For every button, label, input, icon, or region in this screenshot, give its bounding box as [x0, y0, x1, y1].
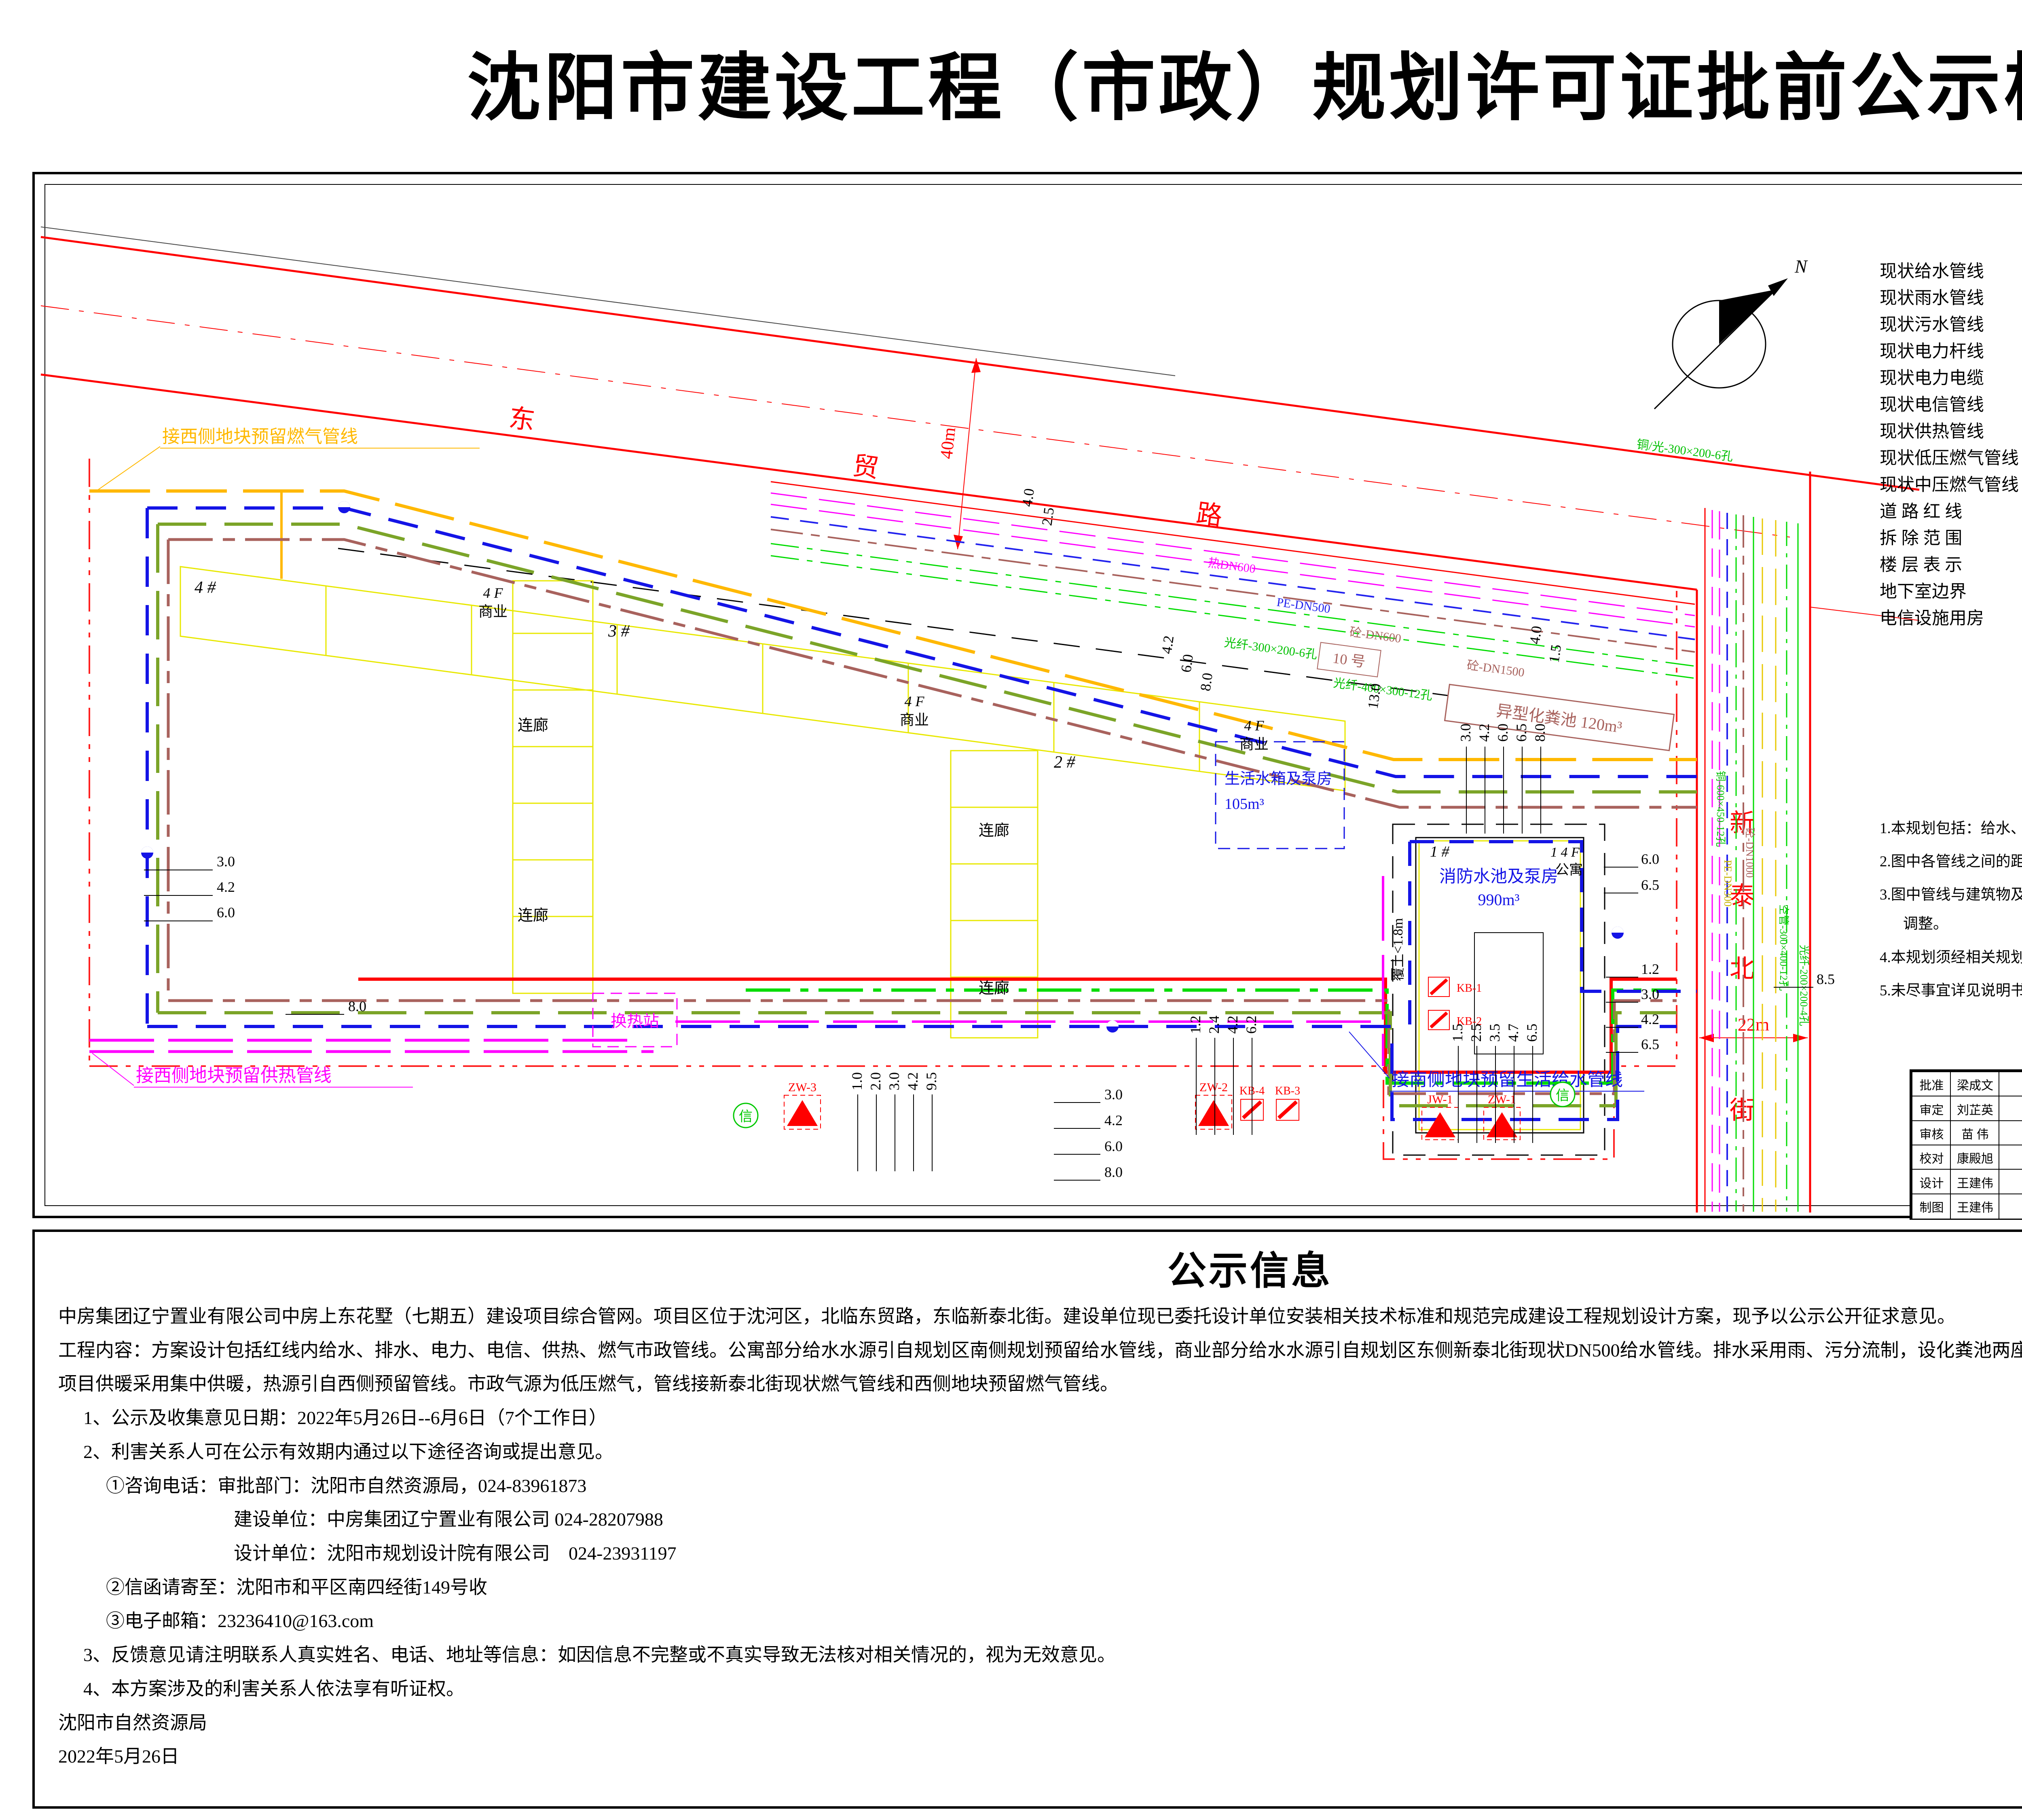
pipe-label: 光纤-300×200-6孔: [1223, 636, 1318, 661]
note-item: 2.图中各管线之间的距离为中心距，单位为米。: [1880, 847, 2022, 876]
role-label: 批准: [1912, 1071, 1952, 1097]
dim-label: 8.0: [348, 998, 366, 1014]
pipe-label: PE-DN300: [1722, 860, 1734, 907]
dim-label: 3.0: [1104, 1086, 1123, 1103]
pipe-label: 砼-DN1000: [1744, 827, 1756, 878]
equip-label: JW-1: [1427, 1093, 1453, 1106]
dim-label: 3.0: [1641, 986, 1659, 1002]
dim-label: 6.0: [1104, 1138, 1123, 1154]
svg-text:信: 信: [1556, 1088, 1569, 1103]
water-south-label: 接南侧地块预留生活给水管线: [1392, 1070, 1623, 1090]
corridor-label: 连廊: [518, 717, 548, 734]
legend-title: 图 例: [1880, 182, 2022, 238]
note-item: 5.未尽事宜详见说明书，或按有关规范执行。: [1880, 976, 2022, 1005]
legend-row: 现状中压燃气管线 SS 钢 砼 化 粪 池 8 号: [1880, 470, 2022, 497]
dim-label: 9.5: [923, 1072, 939, 1090]
water-tank-room: [1216, 742, 1344, 849]
dim-label: 8.0: [1104, 1164, 1123, 1180]
legend-row: 现状污水管线 规划雨水管线: [1880, 310, 2022, 336]
building-label: 4 #: [195, 578, 216, 597]
cover-depth-label: 覆土<1.8m: [1391, 918, 1406, 981]
dim-label: 1.2: [1187, 1016, 1203, 1034]
legend-row: 拆 除 范 围 地 下 开 闭 站: [1880, 523, 2022, 550]
corridor-label: 连廊: [979, 980, 1009, 997]
drawing-panel: 40m 22m 东 贸 路 新 泰 北 街 N: [32, 172, 2022, 1218]
fire-pool-label: 消防水池及泵房: [1439, 868, 1558, 886]
dim-label: 1.0: [849, 1072, 865, 1090]
dim-label: 3.0: [217, 853, 235, 870]
building-label: 4 F: [483, 585, 503, 601]
legend: 图 例 现状给水管线 规划给水管线 现状雨水管线 规划污水管线 现状污水管: [1880, 182, 2022, 630]
notice-line: 沈阳市自然资源局: [35, 1706, 2022, 1740]
gas-west-callout: 接西侧地块预留燃气管线: [96, 427, 480, 491]
fire-pool-volume: 990m³: [1478, 891, 1519, 909]
role-label: 设计: [1912, 1169, 1952, 1195]
equip-label: ZW-3: [788, 1081, 816, 1094]
legend-row: 现状供热管线 T 规划低压燃气管线 S: [1880, 417, 2022, 443]
heat-station-label: 换热站: [611, 1012, 659, 1030]
notice-title: 公示信息: [35, 1239, 2022, 1295]
pipe-label: 热DN600: [1207, 556, 1256, 576]
dim-label: 6.0: [1641, 851, 1659, 867]
water-tank-label: 生活水箱及泵房: [1225, 770, 1332, 787]
building-label: 1 #: [1430, 843, 1450, 860]
dim-label: 3.0: [886, 1072, 902, 1090]
legend-row: 电信设施用房 信: [1880, 603, 2022, 630]
equip-label: ZW-2: [1199, 1081, 1228, 1094]
dim-label: 8.0: [1532, 724, 1548, 742]
page-title: 沈阳市建设工程（市政）规划许可证批前公示板: [0, 28, 2022, 135]
basement-boundary: [338, 548, 1681, 1155]
dim-label: 8.0: [1197, 672, 1216, 692]
septic-no10-box: 10 号: [1317, 642, 1381, 677]
note-item: 1.本规划包括：给水、排水、电力、电信、供热、燃气等六项专业。: [1880, 814, 2022, 843]
dim-label: 6.2: [1243, 1016, 1259, 1034]
notes: 说 明 1.本规划包括：给水、排水、电力、电信、供热、燃气等六项专业。 2.图中…: [1880, 739, 2022, 1009]
dim-label: 6.0: [1178, 653, 1196, 673]
building-label: 3 #: [608, 622, 630, 641]
dim-label: 1.2: [1641, 961, 1659, 977]
north-compass: N: [1654, 256, 1808, 409]
gas-west-label: 接西侧地块预留燃气管线: [162, 427, 358, 447]
dim-label: 2.5: [1468, 1024, 1484, 1042]
street-name-char: 街: [1730, 1097, 1755, 1124]
notice-line: ②信函请寄至：沈阳市和平区南四经街149号收: [35, 1570, 2022, 1604]
dim-label: 6.0: [217, 904, 235, 921]
legend-row: 现状雨水管线 规划污水管线: [1880, 283, 2022, 310]
role-name: 梁成文: [1950, 1071, 2000, 1097]
pipe-label: 光纤-200×200-4孔: [1798, 945, 1810, 1026]
water-tank-volume: 105m³: [1225, 796, 1264, 813]
dim-label: 4.2: [1225, 1016, 1241, 1034]
road-name-char: 贸: [851, 451, 880, 483]
title-block: 批准 梁成文 审定 刘芷英 审核 苗 伟 校对 康殿旭 设计 王建伟 制图 王建…: [1910, 1069, 2022, 1220]
pipe-label: 铜/光-300×200-6孔: [1636, 438, 1734, 463]
legend-row: 现状低压燃气管线 S 消 火 栓: [1880, 443, 2022, 470]
legend-row: 现状电力杆线 高压 低压 规划电力管线: [1880, 336, 2022, 363]
pipe-label: 铜-600×450-12孔: [1715, 771, 1726, 847]
dim-label: 4.7: [1505, 1024, 1521, 1042]
legend-row: 楼 层 表 示 一层1F 十层10F 地 下 变 电 所: [1880, 550, 2022, 577]
role-name: 王建伟: [1950, 1169, 2000, 1195]
legend-row: 道 路 红 线 异 型 化 粪 池: [1880, 497, 2022, 523]
note-item: 3.图中管线与建筑物及其他管线距离参照综合平面图,各管线进出建筑物的位置可做适当…: [1880, 880, 2022, 939]
north-label: N: [1794, 256, 1808, 277]
equip-label: ZW-1: [1488, 1093, 1516, 1106]
legend-row: 现状电信管线 规划供热管线 T: [1880, 390, 2022, 417]
notice-board: 沈阳市建设工程（市政）规划许可证批前公示板 40m: [0, 0, 2022, 1820]
legend-row: 地下室边界: [1880, 577, 2022, 603]
equip-label: KB-1: [1457, 982, 1482, 995]
dim-label: 4.2: [905, 1072, 921, 1090]
dim-label: 6.5: [1641, 1036, 1659, 1052]
heat-west-callout: 接西侧地块预留供热管线: [92, 1053, 413, 1087]
dim-label: 4.0: [1019, 487, 1037, 508]
dim-label: 4.2: [217, 879, 235, 895]
dim-label: 6.5: [1513, 724, 1529, 742]
building-label: 1 4 F: [1550, 845, 1580, 860]
building-label: 商业: [478, 603, 508, 620]
legend-row: 现状电力电缆 高压 低压 规划电信管线: [1880, 363, 2022, 390]
dim-label: 3.0: [1457, 724, 1474, 742]
building-label: 2 #: [1054, 753, 1076, 772]
role-name: 王建伟: [1950, 1194, 2000, 1219]
role-label: 校对: [1912, 1145, 1952, 1170]
dim-label: 6.0: [1495, 724, 1511, 742]
role-label: 审定: [1912, 1096, 1952, 1122]
dim-label: 4.2: [1476, 724, 1492, 742]
dim-label: 4.0: [1526, 625, 1545, 645]
notice-line: 设计单位：沈阳市规划设计院有限公司 024-23931197: [35, 1536, 2022, 1570]
dim-label: 4.2: [1104, 1112, 1123, 1128]
site-boundary: [89, 459, 1677, 1159]
notice-line: ③电子邮箱：23236410@163.com: [35, 1604, 2022, 1638]
dim-label: 6.5: [1641, 877, 1659, 893]
legend-row: 现状给水管线 规划给水管线: [1880, 256, 2022, 283]
role-name: 康殿旭: [1950, 1145, 2000, 1170]
role-name: 刘芷英: [1950, 1096, 2000, 1122]
dim-label: 13.0: [1364, 682, 1384, 710]
dim-label: 4.2: [1158, 635, 1177, 655]
role-label: 审核: [1912, 1120, 1952, 1146]
dim-label: 1.5: [1449, 1024, 1466, 1042]
notice-line: 工程内容：方案设计包括红线内给水、排水、电力、电信、供热、燃气市政管线。公寓部分…: [35, 1333, 2022, 1367]
building-label: 公寓: [1555, 862, 1583, 878]
dim-label: 8.5: [1817, 971, 1835, 987]
dim-label: 2.0: [867, 1072, 884, 1090]
notice-line: 3、反馈意见请注明联系人真实姓名、电话、地址等信息：如因信息不完整或不真实导致无…: [35, 1638, 2022, 1672]
role-label: 制图: [1912, 1194, 1952, 1219]
role-name: 苗 伟: [1950, 1120, 2000, 1146]
pipe-label: 空管-300×400-12孔: [1778, 904, 1789, 991]
pipe-label: PE-DN500: [1276, 595, 1331, 616]
road-name-char: 路: [1195, 499, 1224, 531]
building-label: 商业: [900, 712, 929, 728]
building-label: 4 F: [905, 693, 925, 709]
notice-line: 1、公示及收集意见日期：2022年5月26日--6月6日（7个工作日）: [35, 1401, 2022, 1435]
corridor-label: 连廊: [518, 907, 548, 924]
svg-text:信: 信: [739, 1109, 753, 1124]
dim-label: 3.5: [1487, 1024, 1503, 1042]
notice-line: 项目供暖采用集中供暖，热源引自西侧预留管线。市政气源为低压燃气，管线接新泰北街现…: [35, 1367, 2022, 1401]
dim-label: 1.5: [1546, 643, 1564, 664]
corridor-label: 连廊: [979, 822, 1009, 839]
notice-line: 2、利害关系人可在公示有效期内通过以下途径咨询或提出意见。: [35, 1435, 2022, 1469]
road-name-char: 东: [507, 404, 537, 436]
note-item: 4.本规划须经相关规划管理部门审批同意后，方可执行。: [1880, 943, 2022, 972]
dim-label: 2.5: [1038, 506, 1057, 527]
road-width-label: 40m: [936, 426, 959, 460]
notice-line: 建设单位：中房集团辽宁置业有限公司 024-28207988: [35, 1503, 2022, 1536]
notice-line: 2022年5月26日: [35, 1740, 2022, 1773]
dim-label: 2.4: [1206, 1016, 1222, 1034]
equip-label: KB-3: [1275, 1085, 1300, 1097]
dim-label: 4.2: [1641, 1011, 1659, 1027]
notice-panel: 公示信息 中房集团辽宁置业有限公司中房上东花墅（七期五）建设项目综合管网。项目区…: [32, 1230, 2022, 1809]
notice-line: 中房集团辽宁置业有限公司中房上东花墅（七期五）建设项目综合管网。项目区位于沈河区…: [35, 1299, 2022, 1333]
dim-label: 6.5: [1524, 1024, 1540, 1042]
heat-west-label: 接西侧地块预留供热管线: [136, 1066, 332, 1086]
pipe-label: 砼-DN1500: [1466, 658, 1525, 679]
building-label: 商业: [1239, 736, 1269, 752]
notice-line: 4、本方案涉及的利害关系人依法享有听证权。: [35, 1672, 2022, 1706]
notice-line: ①咨询电话：审批部门：沈阳市自然资源局，024-83961873: [35, 1469, 2022, 1503]
pipe-label: 砼-DN600: [1349, 625, 1402, 645]
street-name-char: 北: [1730, 955, 1755, 983]
notes-title: 说 明: [1880, 739, 2022, 795]
building-label: 4 F: [1244, 717, 1265, 734]
site-plan: 40m 22m 东 贸 路 新 泰 北 街 N: [35, 174, 2022, 1216]
